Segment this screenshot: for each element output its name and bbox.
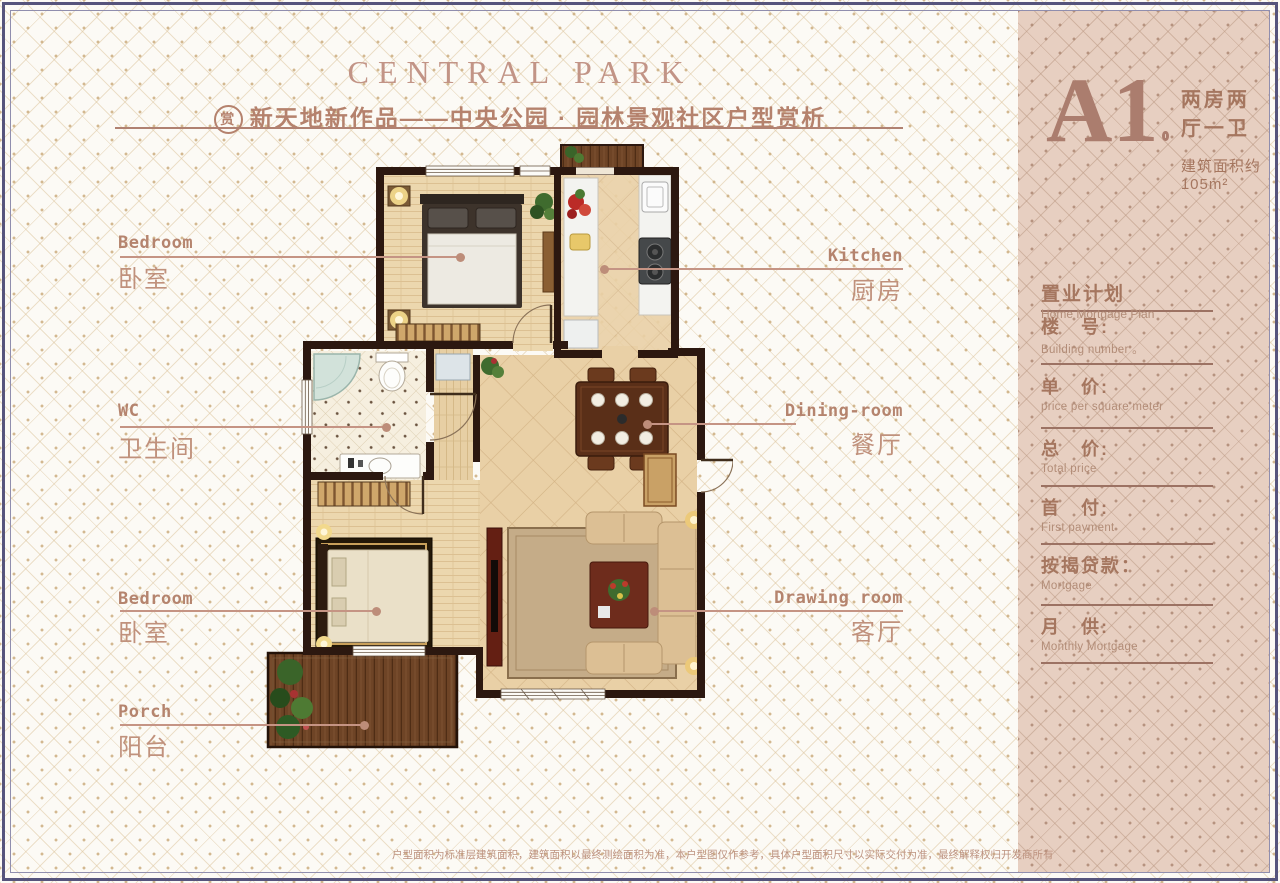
- unit-info: 两房两厅一卫 建筑面积约 105m²: [1181, 73, 1269, 193]
- field-zh: 月 供:: [1041, 613, 1213, 639]
- field-total-price: 总 价: Total price: [1041, 435, 1213, 487]
- unit-area: 建筑面积约 105m²: [1181, 155, 1269, 193]
- unit-code: A1: [1046, 73, 1158, 148]
- label-bedroom2-en: Bedroom: [118, 589, 193, 609]
- page-subtitle: 赏新天地新作品——中央公园 · 园林景观社区户型赏析: [0, 99, 1040, 134]
- field-zh: 总 价:: [1041, 435, 1213, 461]
- poster: CENTRAL PARK 赏新天地新作品——中央公园 · 园林景观社区户型赏析: [0, 0, 1280, 883]
- leader-dot: [360, 721, 369, 730]
- leader-porch: [120, 724, 366, 726]
- header: CENTRAL PARK 赏新天地新作品——中央公园 · 园林景观社区户型赏析: [0, 54, 1040, 134]
- field-zh: 楼 号:: [1041, 313, 1213, 339]
- field-en: price per square meter: [1041, 401, 1213, 413]
- drawing-room-furniture: [487, 511, 703, 678]
- unit-summary: A1 两房两厅一卫 建筑面积约 105m²: [1046, 73, 1269, 193]
- leader-bedroom1: [120, 256, 462, 258]
- side-panel: A1 两房两厅一卫 建筑面积约 105m² 置业计划 Home Mortgage…: [1018, 11, 1269, 872]
- field-en: Total price: [1041, 463, 1213, 475]
- porch-deck: [268, 653, 457, 747]
- label-dining-en: Dining-room: [785, 401, 903, 421]
- lobby-cabinet: [436, 354, 470, 380]
- field-zh: 首 付:: [1041, 494, 1213, 520]
- label-drawing-zh: 客厅: [851, 612, 903, 647]
- leader-wc: [120, 426, 388, 428]
- label-kitchen-zh: 厨房: [851, 271, 903, 306]
- leader-kitchen: [603, 268, 903, 270]
- label-wc-zh: 卫生间: [118, 429, 196, 464]
- header-divider: [115, 127, 903, 129]
- label-bedroom2-zh: 卧室: [118, 613, 170, 648]
- leader-dot: [643, 420, 652, 429]
- mortgage-title-zh: 置业计划: [1041, 279, 1213, 306]
- disclaimer: 户型面积为标准层建筑面积，建筑面积以最终测绘面积为准，本户型图仅作参考，具体户型…: [392, 847, 1054, 862]
- field-en: Building number 。: [1041, 341, 1213, 357]
- unit-layout: 两房两厅一卫: [1181, 83, 1269, 141]
- field-mortgage: 按揭贷款： Mortgage: [1041, 552, 1213, 606]
- unit-dot-icon: [1162, 131, 1168, 141]
- label-porch-en: Porch: [118, 702, 172, 722]
- field-first-payment: 首 付: First payment: [1041, 494, 1213, 545]
- leader-dot: [650, 607, 659, 616]
- label-porch-zh: 阳台: [118, 727, 170, 762]
- label-dining-zh: 餐厅: [851, 425, 903, 460]
- shang-badge-icon: 赏: [214, 105, 243, 134]
- field-zh: 按揭贷款：: [1041, 552, 1213, 578]
- field-en: Monthly Mortgage: [1041, 641, 1213, 653]
- label-drawing-en: Drawing room: [774, 588, 903, 608]
- field-monthly: 月 供: Monthly Mortgage: [1041, 613, 1213, 664]
- leader-dot: [382, 423, 391, 432]
- label-wc-en: WC: [118, 401, 139, 421]
- leader-dot: [456, 253, 465, 262]
- label-kitchen-en: Kitchen: [828, 246, 903, 266]
- mortgage-title: 置业计划 Home Mortgage Plan: [1041, 279, 1213, 312]
- service-balcony: [561, 145, 643, 169]
- page-title: CENTRAL PARK: [0, 54, 1040, 91]
- field-en: Mortgage: [1041, 580, 1213, 592]
- leader-dot: [600, 265, 609, 274]
- leader-dot: [372, 607, 381, 616]
- label-bedroom1-zh: 卧室: [118, 259, 170, 294]
- leader-dining: [646, 423, 796, 425]
- floorplan: [258, 142, 733, 757]
- leader-bedroom2: [120, 610, 378, 612]
- field-unit-price: 单 价: price per square meter: [1041, 373, 1213, 429]
- field-zh: 单 价:: [1041, 373, 1213, 399]
- label-bedroom1-en: Bedroom: [118, 233, 193, 253]
- field-en: First payment: [1041, 522, 1213, 534]
- field-building-number: 楼 号: Building number 。: [1041, 313, 1213, 365]
